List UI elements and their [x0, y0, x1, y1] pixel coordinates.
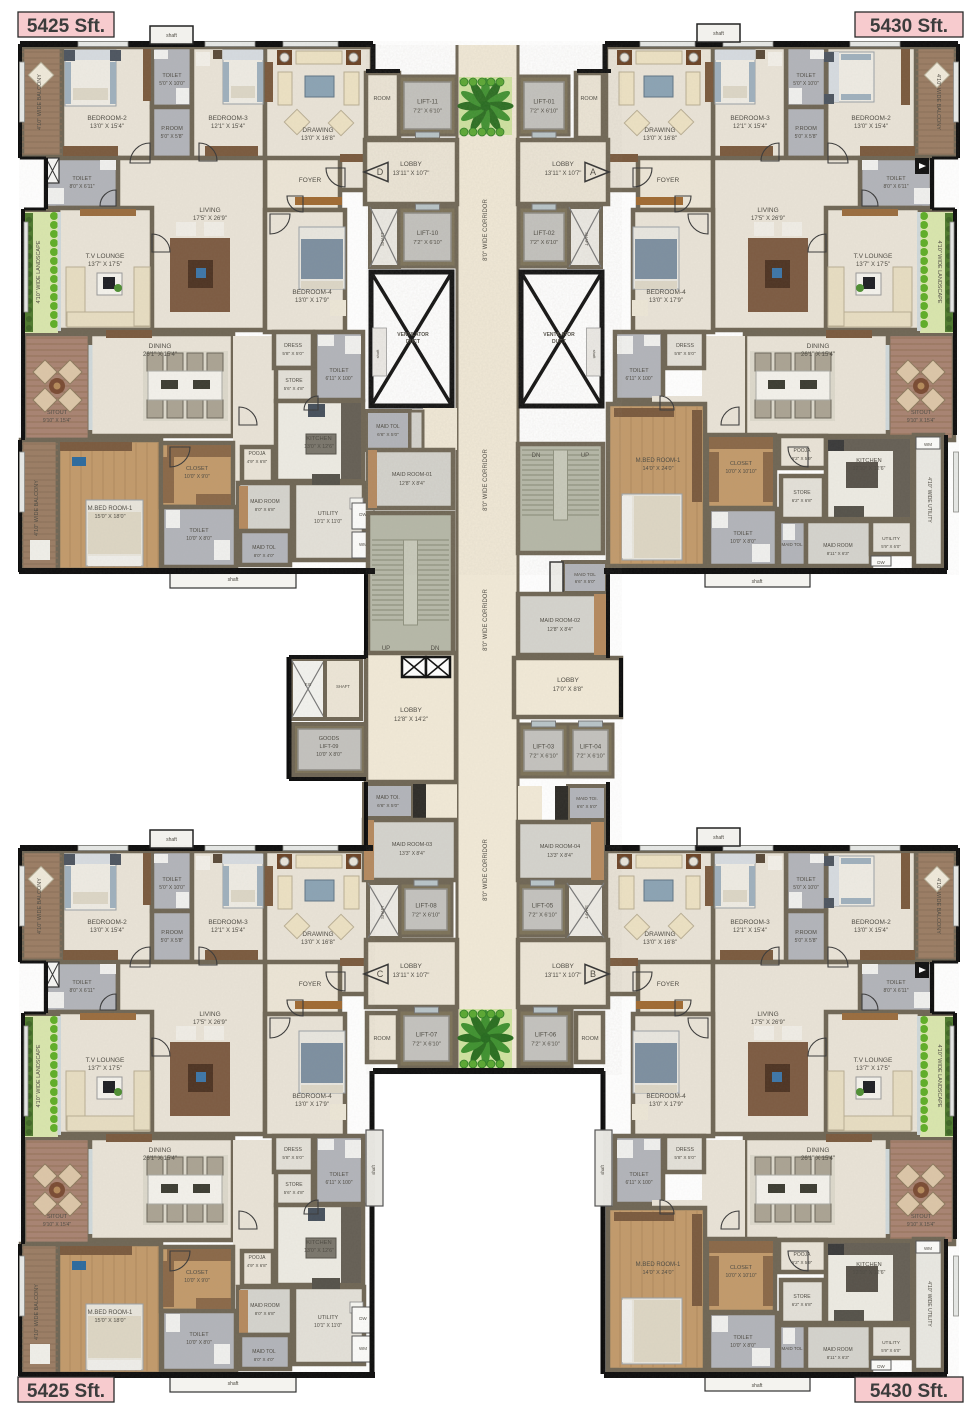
svg-text:shaft: shaft [166, 837, 177, 843]
svg-text:shaft: shaft [228, 1381, 239, 1387]
svg-text:5430 Sft.: 5430 Sft. [870, 1381, 948, 1402]
svg-text:shaft: shaft [713, 835, 724, 841]
svg-text:5425 Sft.: 5425 Sft. [27, 16, 105, 37]
svg-text:shaft: shaft [228, 577, 239, 583]
svg-text:shaft: shaft [713, 31, 724, 37]
svg-text:5425 Sft.: 5425 Sft. [27, 1381, 105, 1402]
svg-text:shaft: shaft [752, 579, 763, 585]
svg-text:5430 Sft.: 5430 Sft. [870, 16, 948, 37]
svg-text:shaft: shaft [166, 33, 177, 39]
svg-text:shaft: shaft [752, 1383, 763, 1389]
